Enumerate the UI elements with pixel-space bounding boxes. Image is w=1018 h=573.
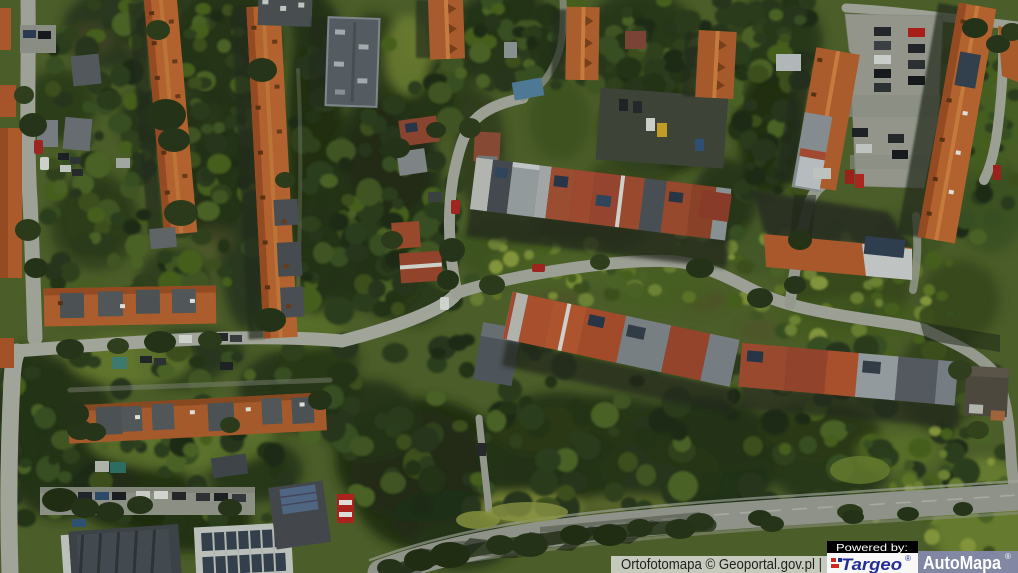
svg-text:AutoMapa: AutoMapa bbox=[923, 553, 1002, 573]
svg-text:Ortofotomapa © Geoportal.gov.p: Ortofotomapa © Geoportal.gov.pl | bbox=[621, 556, 822, 573]
svg-text:Targeo: Targeo bbox=[841, 555, 902, 573]
svg-text:®: ® bbox=[1005, 552, 1011, 561]
svg-text:®: ® bbox=[905, 554, 911, 563]
svg-text:Powered by:: Powered by: bbox=[836, 542, 908, 554]
